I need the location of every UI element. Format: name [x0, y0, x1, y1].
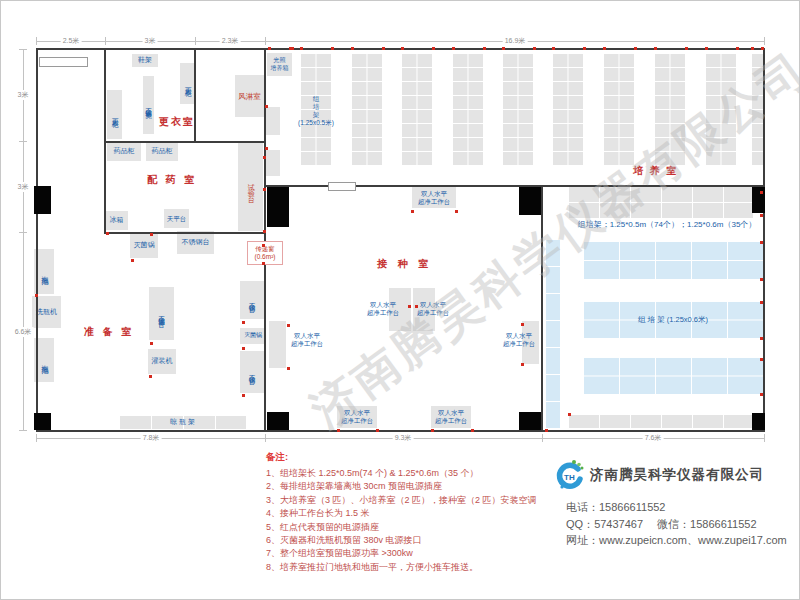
power-outlet-dot — [408, 305, 411, 308]
pass-window: 传递窗 (0.6m²) — [247, 241, 283, 265]
note-item: 8、培养室推拉门地轨和地面一平，方便小推车推送。 — [266, 561, 537, 574]
balance-table: 天平台 — [164, 209, 189, 228]
website-urls: www.zupeicn.com、www.zupei17.com — [599, 534, 787, 546]
wechat-number: 15866611552 — [690, 518, 756, 530]
power-outlet-dot — [545, 429, 548, 432]
qq-number: 57437467 — [594, 518, 643, 530]
power-outlet-dot — [376, 429, 379, 432]
filling-machine-label: 灌装机 — [152, 357, 173, 365]
bottle-washer-label: 洗瓶机 — [36, 308, 57, 316]
power-outlet-dot — [568, 413, 571, 416]
power-outlet-dot — [265, 105, 268, 108]
dimension-line — [36, 434, 37, 442]
power-outlet-dot — [751, 47, 754, 50]
phone-number: 15866611552 — [599, 501, 665, 513]
light-incubator-label: 光照 培养箱 — [271, 57, 289, 71]
shelf-row-blue-label: 组 培 架 (1.25x0.6米) — [638, 315, 708, 324]
note-item: 5、红点代表预留的电源插座 — [266, 521, 537, 534]
room-label-dispensing-room: 配 药 室 — [147, 173, 198, 187]
company-contact: 电话：15866611552 QQ：57437467微信：15866611552… — [566, 499, 787, 549]
laminar-bench-label: 双人水平 超净工作台 — [407, 300, 459, 318]
culture-shelf-column — [654, 53, 685, 165]
steel-table-label: 不锈钢台 — [248, 370, 256, 374]
power-outlet-dot — [432, 47, 435, 50]
dimension-label: 16.9米 — [503, 36, 528, 46]
phone-line: 电话：15866611552 — [566, 499, 787, 516]
door-pillar — [34, 186, 51, 214]
shelf-row-blue — [583, 357, 763, 394]
culture-shelf-column — [452, 53, 483, 165]
power-outlet-dot — [262, 244, 265, 247]
light-incubator: 光照 培养箱 — [267, 53, 292, 76]
balance-table-label: 天平台 — [167, 215, 187, 223]
culture-shelf-column — [351, 53, 382, 165]
power-outlet-dot — [242, 321, 245, 324]
pass-window-label: 传递窗 (0.6m²) — [255, 245, 276, 261]
steel-table: 不锈钢台 — [240, 281, 264, 319]
dimension-label: 9.3米 — [393, 433, 414, 443]
shelf-row-blue: 组 培 架 (1.25x0.6米) — [583, 301, 763, 338]
power-outlet-dot — [760, 358, 763, 361]
logo-text: TH — [564, 473, 575, 482]
power-outlet-dot — [521, 363, 524, 366]
power-outlet-dot — [760, 241, 763, 244]
culture-shelf-column — [705, 53, 736, 165]
dimension-line — [19, 232, 27, 233]
laminar-bench-label-label: 双人水平 超净工作台 — [291, 332, 324, 348]
power-outlet-dot — [263, 156, 266, 159]
laminar-flow-bench-label: 双人水平 超净工作台 — [341, 409, 374, 425]
fridge-label: 冰箱 — [110, 216, 124, 224]
shelf-row — [568, 414, 753, 428]
door-pillar — [267, 412, 289, 430]
sterilizer: 灭菌锅 — [130, 233, 158, 258]
company-logo: TH — [554, 458, 584, 492]
power-outlet-dot — [337, 429, 340, 432]
sterilizer-label: 灭菌锅 — [134, 241, 155, 249]
note-item: 3、大培养室（3 匹）、小培养室（2 匹），接种室（2 匹）安装空调 — [266, 494, 537, 507]
power-outlet-dot — [411, 210, 414, 213]
dimension-line — [265, 434, 266, 442]
door-pillar — [34, 413, 51, 430]
floor-plan-page: 鞋架更衣柜不锈钢条凳更衣柜风淋室药品柜药品柜试验台冰箱天平台灭菌锅不锈钢台泡瓶池… — [0, 0, 800, 600]
steel-table: 不锈钢台 — [177, 231, 214, 254]
power-outlet-dot — [705, 47, 708, 50]
filling-machine: 灌装机 — [148, 349, 176, 374]
dimension-label: 7.8米 — [141, 433, 162, 443]
medicine-cabinet: 药品柜 — [107, 142, 141, 161]
laminar-flow-bench — [269, 321, 286, 368]
locker-label: 更衣柜 — [183, 82, 191, 85]
door-pillar — [752, 413, 765, 430]
power-outlet-dot — [291, 47, 294, 50]
power-outlet-dot — [106, 232, 109, 235]
power-outlet-dot — [760, 301, 763, 304]
dimension-label: 6.6米 — [13, 327, 34, 337]
laminar-bench-label-label: 双人水平 超净工作台 — [367, 301, 400, 317]
note-item: 1、组培架长 1.25*0.5m(74 个) & 1.25*0.6m（35 个） — [266, 467, 537, 480]
culture-shelf-column — [603, 53, 634, 165]
steel-workbench: 不锈钢工作台 — [149, 287, 174, 340]
door-pillar — [519, 412, 541, 430]
room-label-preparation-room: 准 备 室 — [84, 325, 135, 339]
power-outlet-dot — [634, 47, 637, 50]
power-outlet-dot — [760, 337, 763, 340]
culture-shelf-label-label: 组 培 架 (1.25x0.5米) — [298, 95, 334, 126]
cabinet — [265, 150, 280, 176]
power-outlet-dot — [685, 47, 688, 50]
test-bench: 试验台 — [238, 143, 263, 231]
soak-pool-label: 泡瓶池 — [40, 270, 48, 273]
medicine-cabinet-label: 药品柜 — [114, 147, 135, 155]
air-shower-room-label: 风淋室 — [238, 92, 261, 101]
power-outlet-dot — [760, 191, 763, 194]
power-outlet-dot — [263, 188, 266, 191]
soak-pool-label: 泡瓶池 — [40, 359, 48, 362]
power-outlet-dot — [262, 262, 265, 265]
locker: 更衣柜 — [107, 90, 122, 139]
steel-table-label: 不锈钢台 — [182, 238, 210, 246]
fridge: 冰箱 — [105, 211, 128, 230]
power-outlet-dot — [263, 230, 266, 233]
cabinet — [265, 107, 280, 135]
power-outlet-dot — [760, 393, 763, 396]
power-outlet-dot — [149, 375, 152, 378]
power-outlet-dot — [150, 342, 153, 345]
power-outlet-dot — [533, 47, 536, 50]
power-outlet-dot — [150, 233, 153, 236]
culture-shelf-column — [502, 53, 533, 165]
laminar-bench-label: 双人水平 超净工作台 — [285, 331, 329, 349]
dimension-label: 3米 — [16, 90, 31, 100]
power-outlet-dot — [483, 47, 486, 50]
website-line: 网址：www.zupeicn.com、www.zupei17.com — [566, 532, 787, 549]
laminar-flow-bench: 双人水平 超净工作台 — [431, 406, 471, 428]
dimension-line — [195, 37, 196, 45]
door-pillar — [267, 187, 289, 227]
power-outlet-dot — [401, 47, 404, 50]
power-outlet-dot — [382, 47, 385, 50]
shoe-rack: 鞋架 — [132, 54, 158, 67]
dimension-line — [265, 37, 266, 45]
door-pillar — [519, 187, 541, 215]
power-outlet-dot — [521, 323, 524, 326]
culture-shelf-column — [401, 53, 432, 165]
power-outlet-dot — [603, 47, 606, 50]
power-outlet-dot — [331, 47, 334, 50]
notes-section: 备注: 1、组培架长 1.25*0.5m(74 个) & 1.25*0.6m（3… — [266, 451, 537, 574]
shelf-row — [568, 186, 753, 218]
culture-shelf-label: 组 培 架 (1.25x0.5米) — [295, 87, 337, 135]
door-pillar — [752, 187, 765, 213]
laminar-flow-bench-label: 双人水平 超净工作台 — [418, 190, 451, 206]
power-outlet-dot — [242, 347, 245, 350]
wall — [104, 232, 266, 234]
dimension-label: 3米 — [143, 36, 158, 46]
note-item: 4、接种工作台长为 1.5 米 — [266, 507, 537, 520]
note-item: 2、每排组培架靠墙离地 30cm 预留电源插座 — [266, 480, 537, 493]
power-outlet-dot — [265, 147, 268, 150]
company-section: TH 济南腾昊科学仪器有限公司 电话：15866611552 QQ：574374… — [554, 458, 787, 549]
wall — [541, 185, 543, 432]
wall — [36, 430, 765, 432]
dimension-line — [19, 141, 27, 142]
room-label-culture-room: 培 养 室 — [633, 164, 679, 178]
dimension-line — [542, 434, 543, 442]
dimension-line — [23, 49, 24, 431]
qq-wechat-line: QQ：57437467微信：15866611552 — [566, 516, 787, 533]
laminar-bench-label-label: 双人水平 超净工作台 — [417, 301, 450, 317]
power-outlet-dot — [268, 47, 271, 50]
sterilizer: 灭菌锅 — [240, 328, 266, 344]
dimension-label: 2.5米 — [61, 36, 82, 46]
door-opening — [39, 57, 88, 67]
power-outlet-dot — [415, 305, 418, 308]
drying-rack: 晾 瓶 架 — [119, 415, 246, 429]
laminar-flow-bench: 双人水平 超净工作台 — [337, 406, 377, 428]
laminar-bench-label: 双人水平 超净工作台 — [357, 300, 409, 318]
culture-shelf-column — [751, 53, 763, 165]
company-name: 济南腾昊科学仪器有限公司 — [590, 466, 764, 484]
dimension-label: 3米 — [16, 182, 31, 192]
wall — [763, 48, 765, 432]
power-outlet-dot — [287, 324, 290, 327]
power-outlet-dot — [760, 214, 763, 217]
steel-table-label: 不锈钢台 — [248, 298, 256, 302]
laminar-flow-bench: 双人水平 超净工作台 — [412, 187, 456, 208]
power-outlet-dot — [552, 47, 555, 50]
laminar-bench-label-label: 双人水平 超净工作台 — [503, 332, 536, 348]
culture-shelf-column — [552, 53, 583, 165]
wall — [104, 141, 266, 143]
medicine-cabinet-label: 药品柜 — [152, 147, 173, 155]
test-bench-label: 试验台 — [246, 178, 254, 196]
dimension-label: 2.3米 — [220, 36, 241, 46]
power-outlet-dot — [583, 47, 586, 50]
power-outlet-dot — [35, 294, 38, 297]
steel-workbench-label: 不锈钢工作台 — [158, 311, 166, 317]
power-outlet-dot — [654, 47, 657, 50]
shelf-spec-label-label: 组培架：1.25*0.5m（74个）；1.25*0.6m（35个） — [578, 220, 757, 230]
locker-label: 更衣柜 — [110, 113, 118, 116]
power-outlet-dot — [242, 394, 245, 397]
power-outlet-dot — [455, 210, 458, 213]
power-outlet-dot — [287, 367, 290, 370]
wall — [36, 48, 38, 432]
medicine-cabinet: 药品柜 — [146, 142, 178, 161]
power-outlet-dot — [502, 47, 505, 50]
steel-bench-label: 不锈钢条凳 — [145, 103, 153, 108]
door-opening — [328, 182, 356, 191]
drying-rack-label: 晾 瓶 架 — [170, 418, 195, 426]
power-outlet-dot — [760, 278, 763, 281]
note-item: 6、灭菌器和洗瓶机预留 380v 电源接口 — [266, 534, 537, 547]
laminar-bench-label: 双人水平 超净工作台 — [497, 331, 541, 349]
room-label-changing-room: 更衣室 — [159, 115, 195, 129]
note-item: 7、整个组培室预留电源功率 >300kw — [266, 547, 537, 560]
notes-list: 1、组培架长 1.25*0.5m(74 个) & 1.25*0.6m（35 个）… — [266, 467, 537, 574]
sterilizer-label: 灭菌锅 — [244, 332, 262, 339]
shelf-spec-label: 组培架：1.25*0.5m（74个）；1.25*0.6m（35个） — [569, 219, 765, 231]
power-outlet-dot — [471, 429, 474, 432]
shoe-rack-label: 鞋架 — [138, 56, 152, 64]
dimension-line — [19, 49, 27, 50]
shelf-row-blue — [583, 241, 763, 279]
power-outlet-dot — [736, 47, 739, 50]
laminar-flow-bench-label: 双人水平 超净工作台 — [435, 409, 468, 425]
air-shower-room: 风淋室 — [235, 75, 264, 117]
notes-title: 备注: — [266, 451, 537, 464]
room-label-inoculation-room: 接 种 室 — [377, 257, 433, 271]
power-outlet-dot — [351, 47, 354, 50]
power-outlet-dot — [300, 47, 303, 50]
steel-table: 不锈钢台 — [240, 351, 264, 393]
power-outlet-dot — [431, 429, 434, 432]
power-outlet-dot — [452, 47, 455, 50]
power-outlet-dot — [131, 259, 134, 262]
dimension-line — [36, 37, 37, 45]
dimension-line — [764, 37, 765, 45]
dimension-line — [19, 430, 27, 431]
dimension-label: 7.6米 — [643, 433, 664, 443]
steel-bench: 不锈钢条凳 — [143, 76, 154, 134]
locker: 更衣柜 — [180, 63, 195, 104]
dimension-line — [764, 434, 765, 442]
power-outlet-dot — [761, 47, 764, 50]
shelf-column-blue — [545, 239, 560, 429]
dimension-line — [105, 37, 106, 45]
